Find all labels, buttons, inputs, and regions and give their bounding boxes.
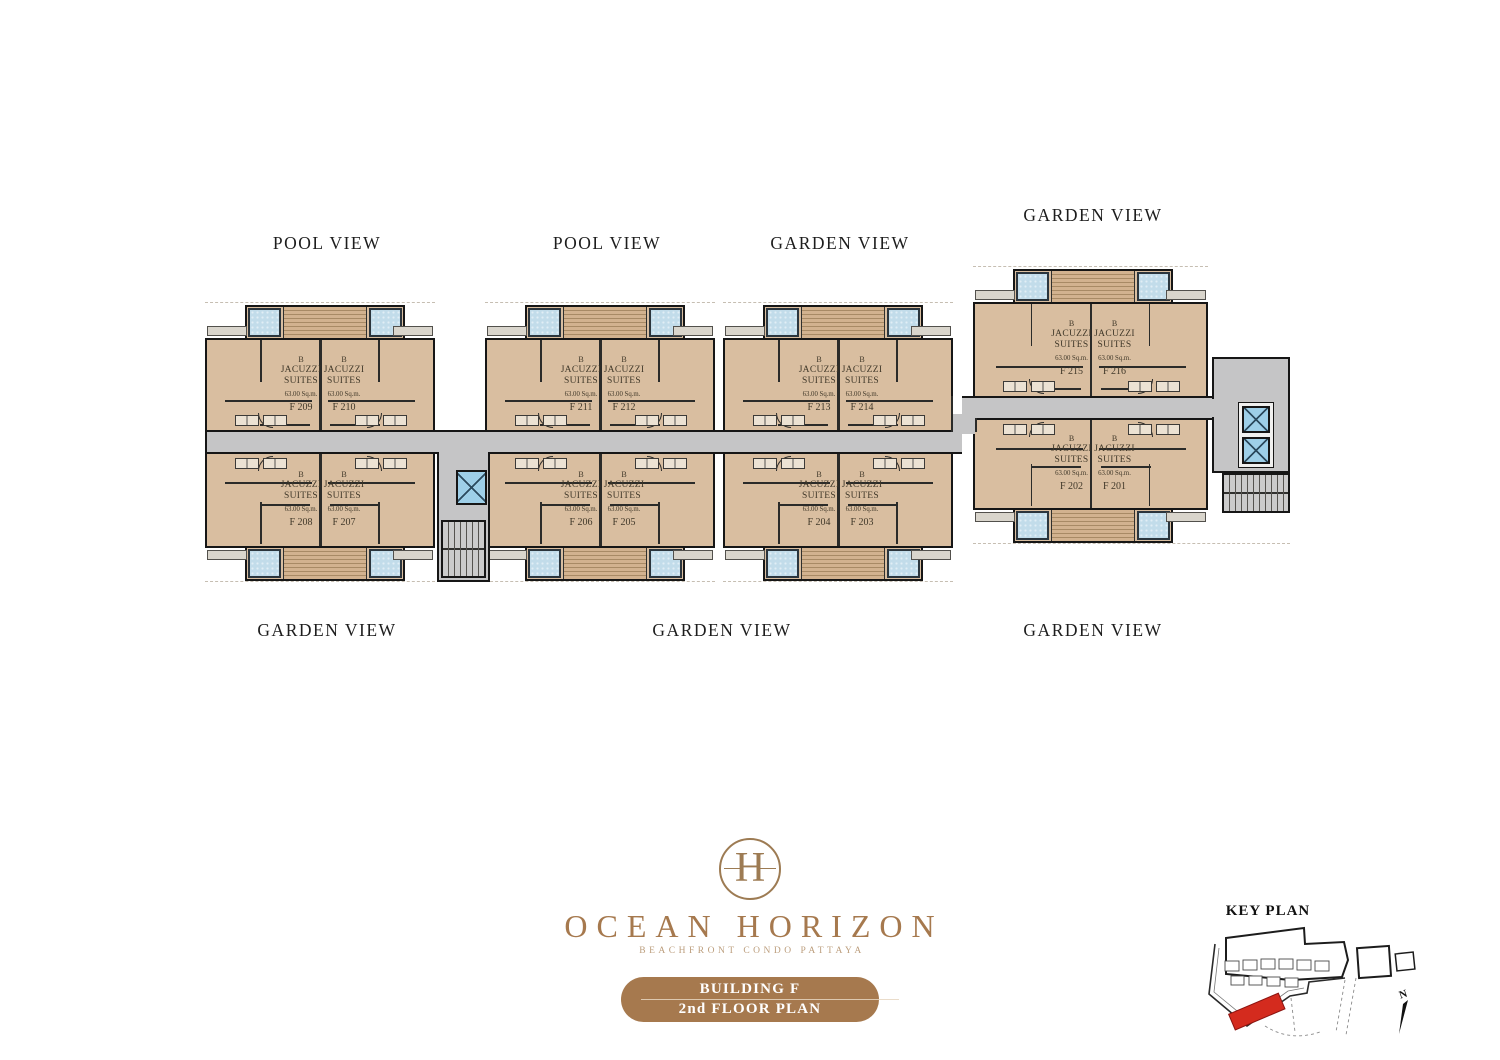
unit-label-line: F 201 <box>1083 481 1147 492</box>
staircase <box>1222 473 1290 513</box>
bathroom-fixture <box>383 415 407 426</box>
unit-label-line: SUITES <box>1083 455 1147 466</box>
window-ledge <box>487 550 527 560</box>
brand-name: OCEAN HORIZON <box>564 908 943 945</box>
bathroom-fixture <box>263 458 287 469</box>
bathroom-fixture <box>781 458 805 469</box>
logo-left-line <box>724 868 740 870</box>
jacuzzi-pool <box>528 308 561 337</box>
bathroom-fixture <box>901 458 925 469</box>
jacuzzi-pool <box>1016 272 1049 301</box>
key-plan-annex-1 <box>1357 946 1391 978</box>
bathroom-fixture <box>901 415 925 426</box>
bathroom-fixture <box>663 415 687 426</box>
guide-line-bottom <box>723 581 953 582</box>
bathroom-fixture <box>663 458 687 469</box>
unit-label-line: SUITES <box>592 491 656 502</box>
interior-wall <box>658 340 660 382</box>
interior-wall <box>896 502 898 544</box>
unit-label-line: JACUZZI <box>830 480 894 491</box>
window-ledge <box>1166 512 1206 522</box>
interior-wall <box>1149 464 1151 506</box>
jacuzzi-pool <box>1016 511 1049 540</box>
unit-label-line: F 210 <box>312 402 376 413</box>
badge-building: BUILDING F <box>621 981 879 998</box>
interior-wall <box>778 502 780 544</box>
window-ledge <box>207 326 247 336</box>
interior-wall <box>658 502 660 544</box>
unit-label: BJACUZZISUITES63.00 Sq.m.F 210 <box>312 355 376 413</box>
view-label: GARDEN VIEW <box>1023 620 1162 641</box>
unit-label-line: SUITES <box>830 376 894 387</box>
balcony-deck <box>1051 510 1135 541</box>
view-label: POOL VIEW <box>273 233 381 254</box>
balcony-deck <box>801 307 885 338</box>
bathroom-fixture <box>1156 381 1180 392</box>
elevator <box>456 470 487 505</box>
corridor-wing <box>962 396 1212 420</box>
key-plan: N <box>1195 920 1435 1060</box>
unit-label: BJACUZZISUITES63.00 Sq.m.F 205 <box>592 470 656 528</box>
unit-label: BJACUZZISUITES63.00 Sq.m.F 214 <box>830 355 894 413</box>
jacuzzi-pool <box>766 549 799 578</box>
window-ledge <box>725 326 765 336</box>
unit-label: BJACUZZISUITES63.00 Sq.m.F 216 <box>1083 319 1147 377</box>
unit-label-line: 63.00 Sq.m. <box>1083 354 1147 363</box>
unit-label-line: B <box>830 355 894 365</box>
unit-label-line: F 216 <box>1083 366 1147 377</box>
window-ledge <box>393 550 433 560</box>
key-plan-main-building <box>1226 928 1348 980</box>
window-ledge <box>911 326 951 336</box>
window-ledge <box>975 290 1015 300</box>
unit-label-line: JACUZZI <box>592 365 656 376</box>
interior-wall <box>260 340 262 382</box>
guide-line-bottom <box>205 581 435 582</box>
balcony-deck <box>283 307 367 338</box>
corridor-connector <box>953 414 975 434</box>
unit-label-line: 63.00 Sq.m. <box>312 390 376 399</box>
elevator <box>1242 406 1270 433</box>
badge-divider <box>641 999 899 1000</box>
bathroom-fixture <box>235 458 259 469</box>
bathroom-fixture <box>753 415 777 426</box>
bathroom-fixture <box>235 415 259 426</box>
unit-label-line: SUITES <box>1083 340 1147 351</box>
unit-label-line: 63.00 Sq.m. <box>592 390 656 399</box>
unit-label-line: JACUZZI <box>830 365 894 376</box>
bathroom-fixture <box>515 415 539 426</box>
bathroom-fixture <box>543 415 567 426</box>
unit-label: BJACUZZISUITES63.00 Sq.m.F 203 <box>830 470 894 528</box>
bathroom-fixture <box>635 458 659 469</box>
unit-label-line: F 212 <box>592 402 656 413</box>
key-plan-title: KEY PLAN <box>1226 903 1311 920</box>
interior-wall <box>1031 304 1033 346</box>
window-ledge <box>393 326 433 336</box>
bathroom-fixture <box>873 415 897 426</box>
guide-line-top <box>485 302 715 303</box>
unit-label-line: B <box>830 470 894 480</box>
balcony-deck <box>283 548 367 579</box>
window-ledge <box>673 326 713 336</box>
guide-line-top <box>205 302 435 303</box>
building-badge: BUILDING F 2nd FLOOR PLAN <box>621 977 879 1022</box>
window-ledge <box>207 550 247 560</box>
unit-label: BJACUZZISUITES63.00 Sq.m.F 201 <box>1083 434 1147 492</box>
guide-line-bottom <box>485 581 715 582</box>
bathroom-fixture <box>873 458 897 469</box>
bathroom-fixture <box>355 415 379 426</box>
guide-line-top <box>973 266 1208 267</box>
view-label: GARDEN VIEW <box>652 620 791 641</box>
unit-label: BJACUZZISUITES63.00 Sq.m.F 207 <box>312 470 376 528</box>
bathroom-fixture <box>515 458 539 469</box>
interior-wall <box>378 340 380 382</box>
logo-right-line <box>760 868 776 870</box>
elevator <box>1242 437 1270 464</box>
interior-wall <box>260 502 262 544</box>
window-ledge <box>1166 290 1206 300</box>
unit-label-line: B <box>1083 319 1147 329</box>
bathroom-fixture <box>635 415 659 426</box>
window-ledge <box>911 550 951 560</box>
jacuzzi-pool <box>766 308 799 337</box>
bathroom-fixture <box>1128 381 1152 392</box>
unit-label-line: B <box>592 470 656 480</box>
bathroom-fixture <box>263 415 287 426</box>
interior-wall <box>378 502 380 544</box>
bathroom-fixture <box>383 458 407 469</box>
window-ledge <box>487 326 527 336</box>
window-ledge <box>673 550 713 560</box>
jacuzzi-pool <box>528 549 561 578</box>
corridor-wall <box>951 396 953 432</box>
unit-label-line: F 203 <box>830 517 894 528</box>
unit-label-line: 63.00 Sq.m. <box>830 390 894 399</box>
unit-label-line: JACUZZI <box>312 365 376 376</box>
view-label: GARDEN VIEW <box>257 620 396 641</box>
unit-label-line: B <box>312 355 376 365</box>
bathroom-fixture <box>1156 424 1180 435</box>
jacuzzi-pool <box>248 308 281 337</box>
guide-line-bottom <box>973 543 1290 544</box>
view-label: GARDEN VIEW <box>770 233 909 254</box>
bathroom-fixture <box>781 415 805 426</box>
unit-label-line: F 205 <box>592 517 656 528</box>
view-label: GARDEN VIEW <box>1023 205 1162 226</box>
unit-label-line: B <box>592 355 656 365</box>
bathroom-fixture <box>355 458 379 469</box>
balcony-deck <box>563 548 647 579</box>
floor-plan: POOL VIEWPOOL VIEWGARDEN VIEWGARDEN VIEW… <box>0 0 1500 1060</box>
unit-label: BJACUZZISUITES63.00 Sq.m.F 212 <box>592 355 656 413</box>
bathroom-fixture <box>753 458 777 469</box>
view-label: POOL VIEW <box>553 233 661 254</box>
badge-floor: 2nd FLOOR PLAN <box>621 1001 879 1018</box>
unit-label-line: JACUZZI <box>312 480 376 491</box>
bathroom-fixture <box>1003 381 1027 392</box>
unit-label-line: F 207 <box>312 517 376 528</box>
corridor-wall <box>975 418 977 432</box>
unit-label-line: SUITES <box>592 376 656 387</box>
bathroom-fixture <box>1003 424 1027 435</box>
unit-label-line: 63.00 Sq.m. <box>312 505 376 514</box>
unit-label-line: SUITES <box>312 491 376 502</box>
core-opening <box>1206 399 1216 417</box>
unit-label-line: JACUZZI <box>1083 329 1147 340</box>
unit-label-line: JACUZZI <box>1083 444 1147 455</box>
staircase <box>441 520 486 578</box>
window-ledge <box>725 550 765 560</box>
unit-label-line: SUITES <box>312 376 376 387</box>
floor-plan-page: POOL VIEWPOOL VIEWGARDEN VIEWGARDEN VIEW… <box>0 0 1500 1060</box>
bathroom-fixture <box>543 458 567 469</box>
interior-wall <box>540 502 542 544</box>
interior-wall <box>778 340 780 382</box>
unit-label-line: B <box>1083 434 1147 444</box>
north-arrow: N <box>1398 988 1409 1034</box>
window-ledge <box>975 512 1015 522</box>
corridor-main <box>205 430 962 454</box>
balcony-deck <box>801 548 885 579</box>
unit-label-line: JACUZZI <box>592 480 656 491</box>
guide-line-top <box>723 302 953 303</box>
interior-wall <box>1149 304 1151 346</box>
brand-logo-circle: H <box>719 838 781 900</box>
unit-label-line: SUITES <box>830 491 894 502</box>
unit-label-line: 63.00 Sq.m. <box>1083 469 1147 478</box>
unit-label-line: B <box>312 470 376 480</box>
unit-label-line: 63.00 Sq.m. <box>830 505 894 514</box>
jacuzzi-pool <box>248 549 281 578</box>
interior-wall <box>540 340 542 382</box>
north-label: N <box>1398 988 1409 1002</box>
interior-wall <box>1031 464 1033 506</box>
balcony-deck <box>1051 271 1135 302</box>
interior-wall <box>896 340 898 382</box>
brand-tagline: BEACHFRONT CONDO PATTAYA <box>639 946 864 956</box>
bathroom-fixture <box>1031 381 1055 392</box>
balcony-deck <box>563 307 647 338</box>
unit-label-line: F 214 <box>830 402 894 413</box>
key-plan-highlight-building <box>1229 993 1285 1030</box>
unit-label-line: 63.00 Sq.m. <box>592 505 656 514</box>
key-plan-annex-2 <box>1395 952 1415 971</box>
